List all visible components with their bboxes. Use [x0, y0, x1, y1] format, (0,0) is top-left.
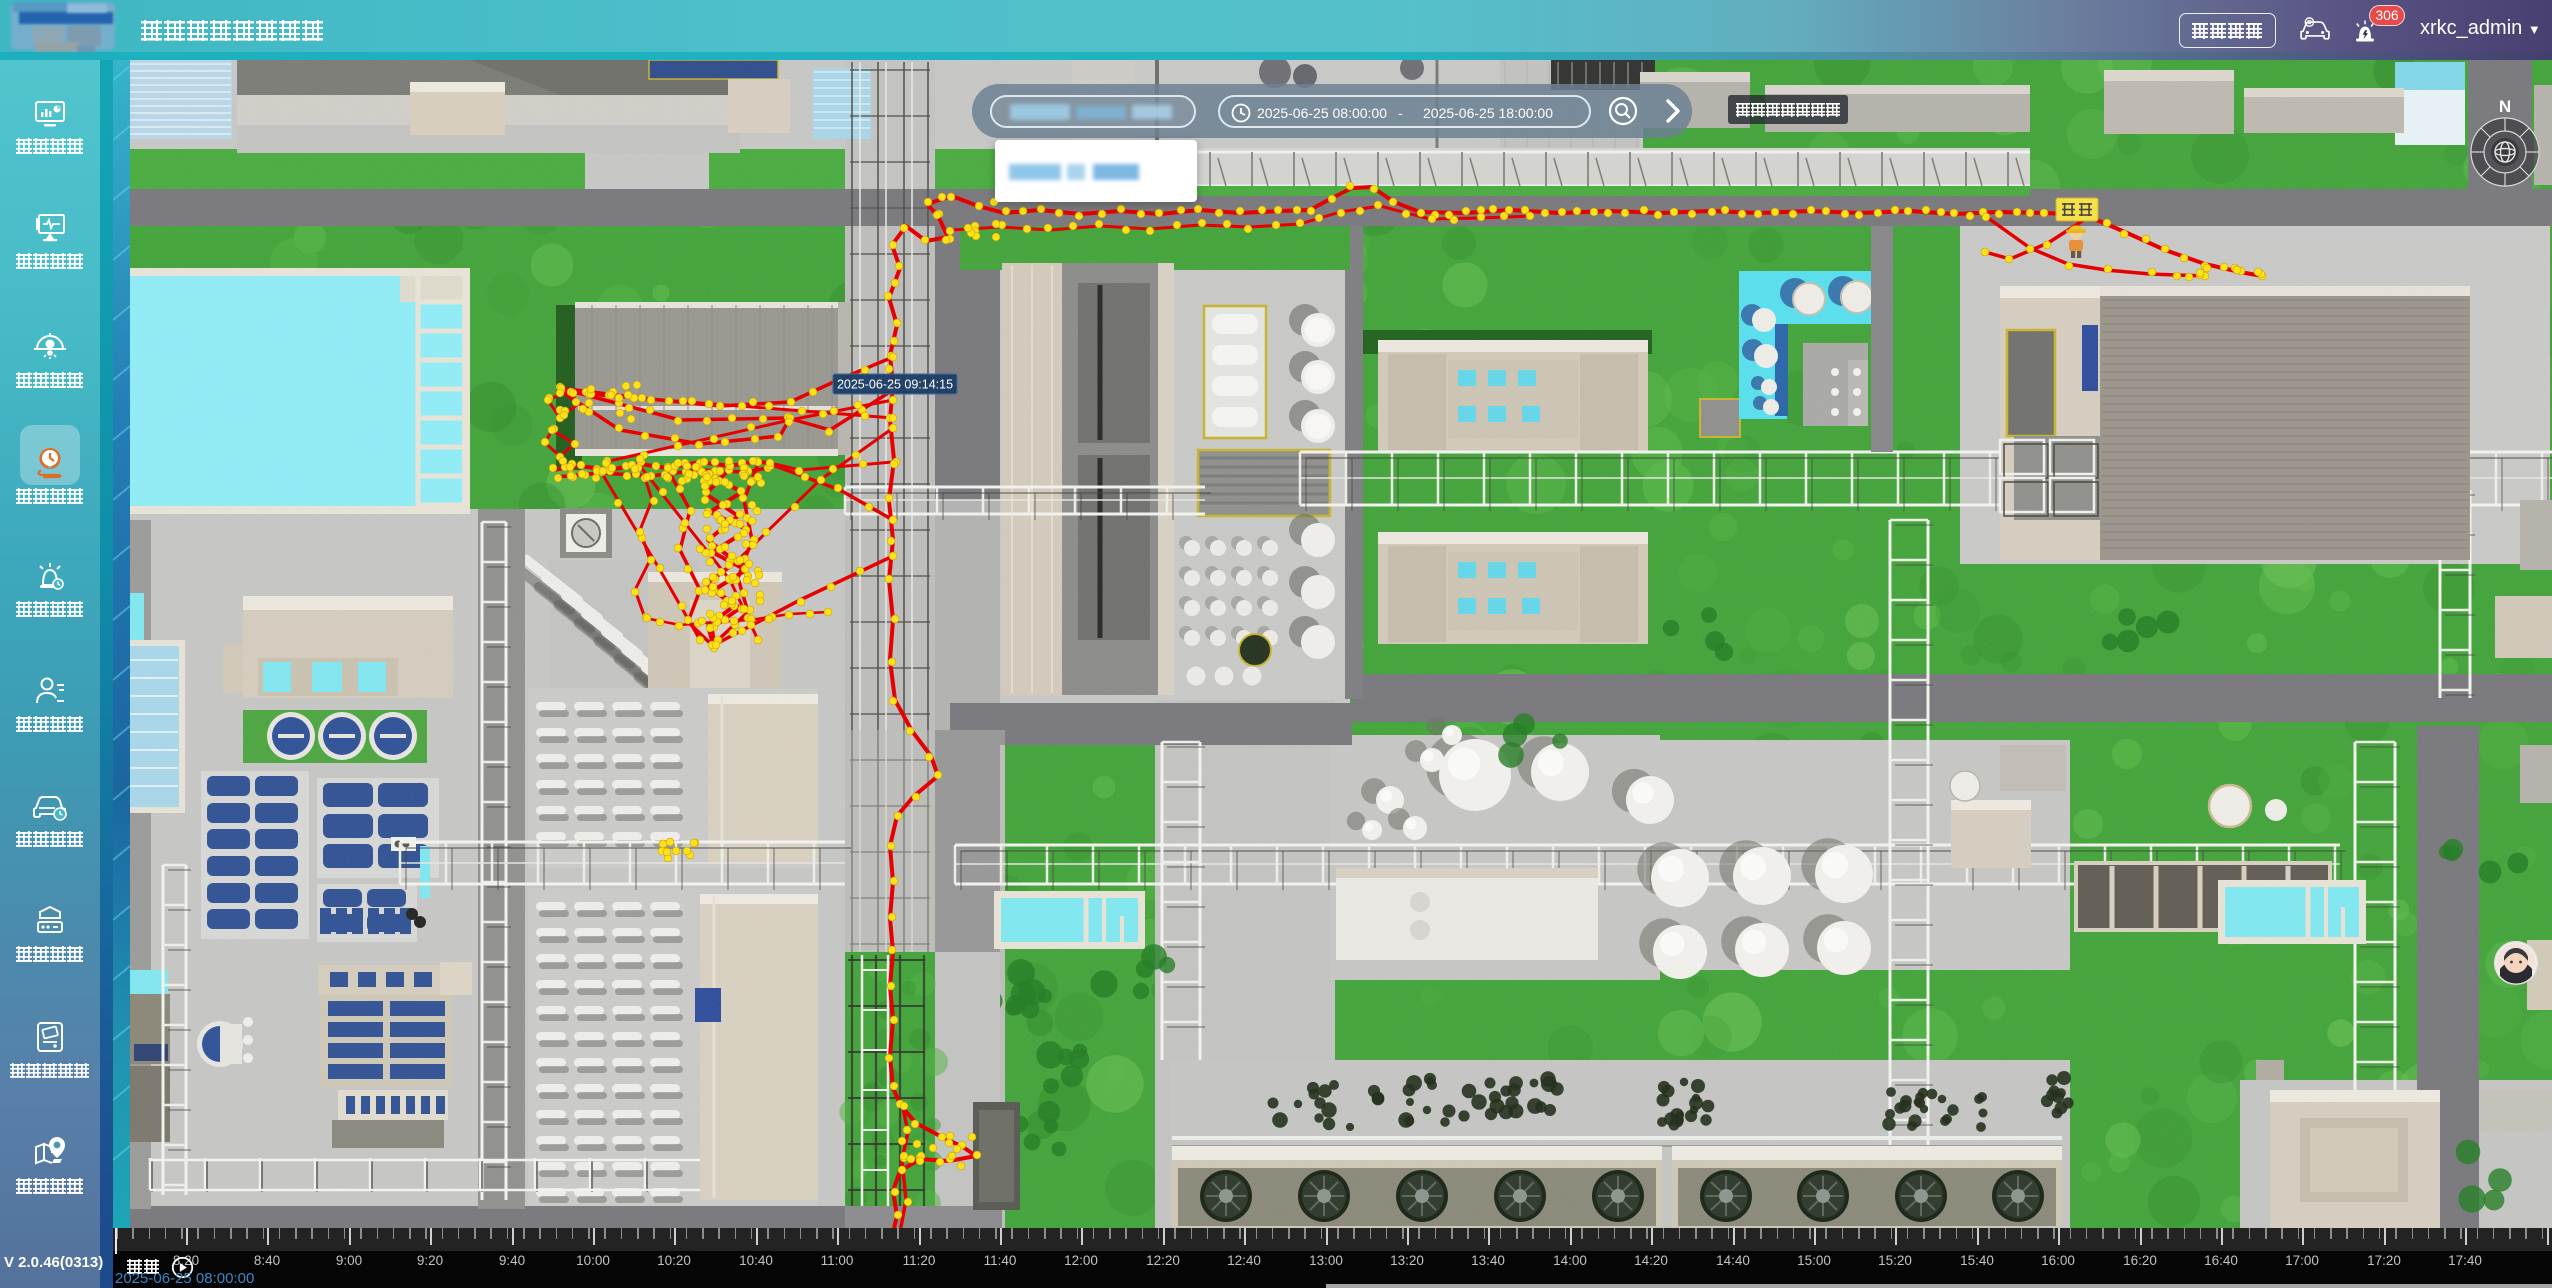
svg-text:2025-06-25 09:14:15: 2025-06-25 09:14:15 [837, 378, 953, 392]
svg-text:N: N [2499, 97, 2511, 116]
